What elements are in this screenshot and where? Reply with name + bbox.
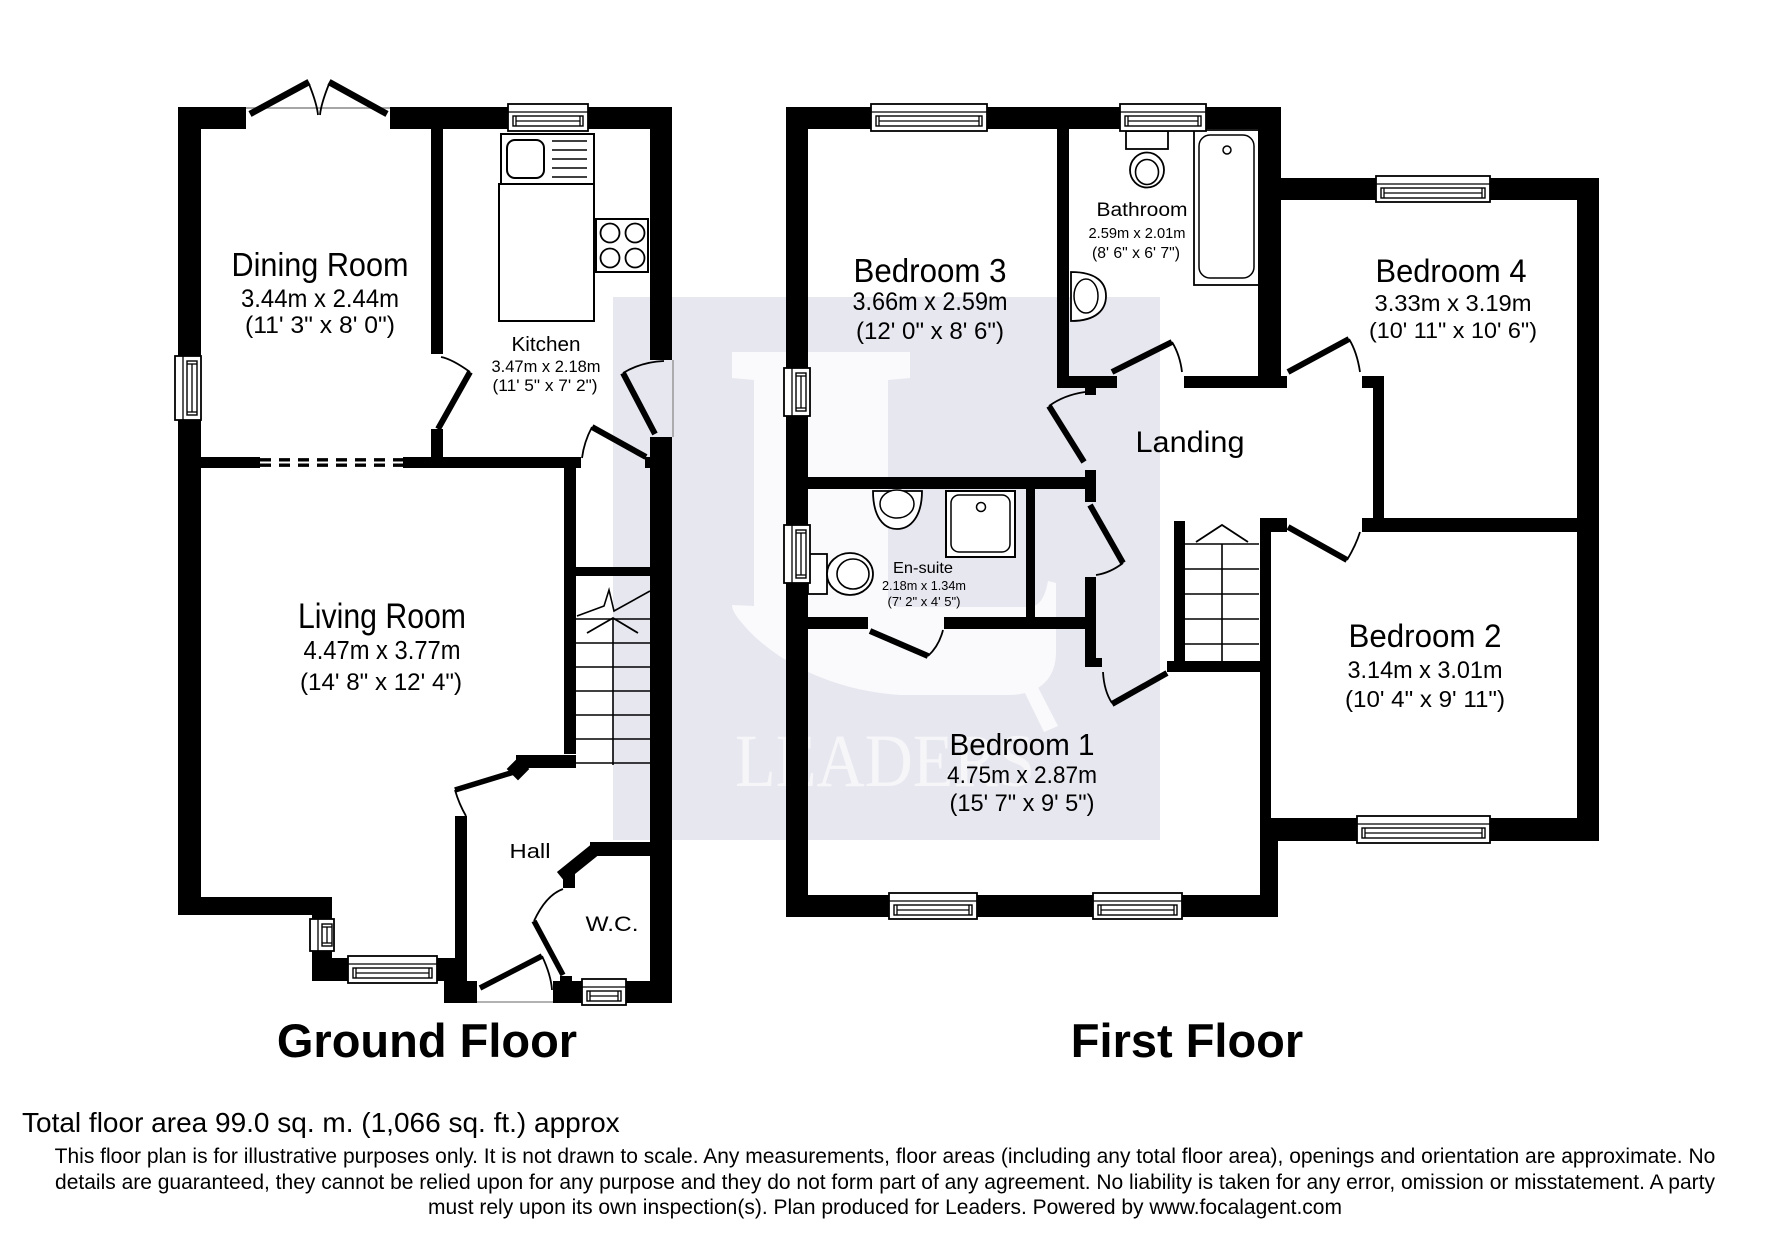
svg-text:En-suite: En-suite [893, 560, 953, 577]
svg-text:(12' 0" x 8' 6"): (12' 0" x 8' 6") [856, 318, 1004, 345]
svg-text:W.C.: W.C. [586, 913, 639, 936]
svg-text:Bedroom 1: Bedroom 1 [950, 727, 1095, 762]
svg-text:Dining Room: Dining Room [232, 246, 409, 283]
svg-text:3.47m x 2.18m: 3.47m x 2.18m [492, 358, 601, 376]
svg-text:3.14m x 3.01m: 3.14m x 3.01m [1348, 657, 1503, 684]
svg-text:Kitchen: Kitchen [512, 334, 581, 356]
svg-text:First Floor: First Floor [1071, 1014, 1303, 1067]
svg-text:Ground Floor: Ground Floor [277, 1014, 577, 1067]
svg-text:4.47m x 3.77m: 4.47m x 3.77m [304, 637, 461, 665]
svg-text:(7' 2" x 4' 5"): (7' 2" x 4' 5") [888, 595, 961, 609]
svg-text:Bedroom 4: Bedroom 4 [1376, 253, 1527, 289]
svg-text:must rely upon its own inspect: must rely upon its own inspection(s). Pl… [428, 1196, 1342, 1219]
svg-text:Living Room: Living Room [298, 597, 466, 636]
svg-text:3.44m x 2.44m: 3.44m x 2.44m [241, 285, 399, 313]
svg-text:(15' 7" x 9' 5"): (15' 7" x 9' 5") [950, 790, 1095, 817]
svg-text:Total floor area 99.0 sq. m. (: Total floor area 99.0 sq. m. (1,066 sq. … [22, 1107, 620, 1138]
svg-text:(11' 5" x 7' 2"): (11' 5" x 7' 2") [493, 376, 598, 395]
svg-text:2.59m x 2.01m: 2.59m x 2.01m [1089, 225, 1186, 242]
svg-text:(10' 11" x 10' 6"): (10' 11" x 10' 6") [1369, 318, 1537, 343]
svg-text:2.18m x 1.34m: 2.18m x 1.34m [882, 578, 966, 593]
svg-text:(8' 6" x 6' 7"): (8' 6" x 6' 7") [1092, 245, 1180, 262]
svg-text:4.75m x 2.87m: 4.75m x 2.87m [947, 762, 1097, 789]
svg-text:(10' 4" x 9' 11"): (10' 4" x 9' 11") [1345, 686, 1505, 712]
svg-text:Bedroom 3: Bedroom 3 [854, 252, 1007, 289]
svg-text:(11' 3" x 8' 0"): (11' 3" x 8' 0") [245, 312, 395, 339]
svg-text:3.66m x 2.59m: 3.66m x 2.59m [853, 288, 1008, 316]
svg-text:details are guaranteed, they c: details are guaranteed, they cannot be r… [55, 1171, 1715, 1194]
svg-text:This floor plan is for illustr: This floor plan is for illustrative purp… [55, 1145, 1716, 1168]
svg-text:(14' 8" x 12' 4"): (14' 8" x 12' 4") [300, 669, 462, 696]
svg-text:Bedroom 2: Bedroom 2 [1349, 618, 1502, 654]
svg-text:Landing: Landing [1136, 426, 1245, 459]
svg-text:Hall: Hall [510, 841, 551, 863]
svg-text:3.33m x 3.19m: 3.33m x 3.19m [1375, 290, 1532, 316]
svg-text:Bathroom: Bathroom [1097, 200, 1188, 221]
